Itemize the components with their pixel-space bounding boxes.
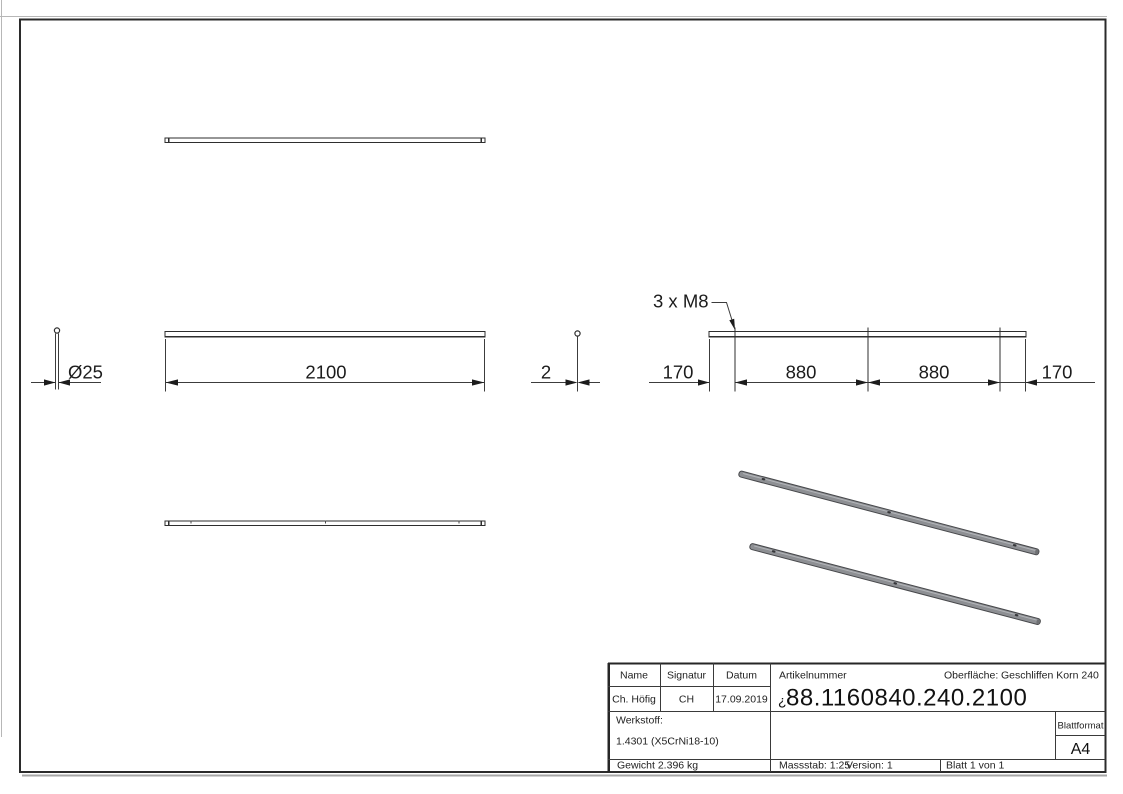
- header-name: Name: [620, 670, 648, 682]
- front-view-holes: 170 880 880 170 3 x M8: [649, 291, 1095, 392]
- top-view-bar: [165, 138, 485, 142]
- seg-arrow-2: [735, 379, 747, 385]
- header-signature: Signatur: [667, 670, 707, 682]
- diameter-dim-text: Ø25: [68, 362, 103, 383]
- version-text: Version: 1: [846, 760, 893, 772]
- top-view: [165, 138, 485, 142]
- drawing-sheet: Ø25 2100 2 170 880 880 170 3 x M8: [0, 0, 1123, 794]
- article-label: Artikelnummer: [779, 670, 847, 682]
- front-view-length: 2100: [165, 332, 485, 392]
- length-dim-text: 2100: [305, 362, 346, 383]
- seg-arrow-4: [868, 379, 880, 385]
- surface-label: Oberfläche:: [944, 670, 998, 682]
- seg-arrow-1: [698, 379, 710, 385]
- tube-end-circle: [54, 328, 59, 333]
- bottom-view: [165, 521, 485, 526]
- sheet-number-text: Blatt 1 von 1: [946, 760, 1005, 772]
- iso-tube-1: [738, 471, 1039, 556]
- end-view-thickness: 2: [531, 331, 600, 392]
- seg-arrow-6: [1026, 379, 1038, 385]
- seg-text-mid1: 880: [786, 362, 817, 383]
- drawing-frame: [20, 20, 1106, 773]
- value-date: 17.09.2019: [715, 694, 768, 706]
- material-label: Werkstoff:: [616, 715, 663, 727]
- thread-leader-arrow: [729, 319, 735, 330]
- length-arrow-right: [472, 379, 485, 385]
- format-label: Blattformat: [1058, 721, 1104, 732]
- tube-end-circle-2: [575, 331, 580, 336]
- page-edges: [0, 0, 1107, 776]
- diameter-extension-lines: [56, 334, 59, 390]
- scale-text: Massstab: 1:25: [779, 760, 850, 772]
- seg-text-mid2: 880: [919, 362, 950, 383]
- article-number: 88.1160840.240.2100: [786, 685, 1027, 712]
- title-block: Name Signatur Datum Ch. Höfig CH 17.09.2…: [608, 663, 1106, 772]
- length-arrow-left: [166, 379, 179, 385]
- length-view-bar: [165, 332, 485, 337]
- weight-text: Gewicht 2.396 kg: [617, 760, 698, 772]
- iso-tube-2: [749, 543, 1041, 625]
- format-value: A4: [1071, 741, 1091, 758]
- seg-arrow-3: [856, 379, 868, 385]
- seg-arrow-5: [988, 379, 1000, 385]
- thickness-arrow-right: [578, 379, 590, 385]
- thickness-dim-text: 2: [541, 362, 551, 383]
- value-name: Ch. Höfig: [612, 694, 656, 706]
- seg-text-left: 170: [663, 362, 694, 383]
- thread-note-text: 3 x M8: [653, 291, 709, 312]
- material-value: 1.4301 (X5CrNi18-10): [616, 736, 719, 748]
- value-signature: CH: [679, 694, 694, 706]
- seg-text-right: 170: [1042, 362, 1073, 383]
- header-date: Datum: [726, 670, 757, 682]
- end-view-diameter: Ø25: [31, 328, 103, 390]
- thread-leader-line: [712, 303, 732, 320]
- thickness-arrow-left: [566, 379, 578, 385]
- surface-value: Geschliffen Korn 240: [1001, 670, 1099, 682]
- diameter-arrow-left: [44, 379, 56, 385]
- drawing-canvas: Ø25 2100 2 170 880 880 170 3 x M8: [0, 0, 1123, 794]
